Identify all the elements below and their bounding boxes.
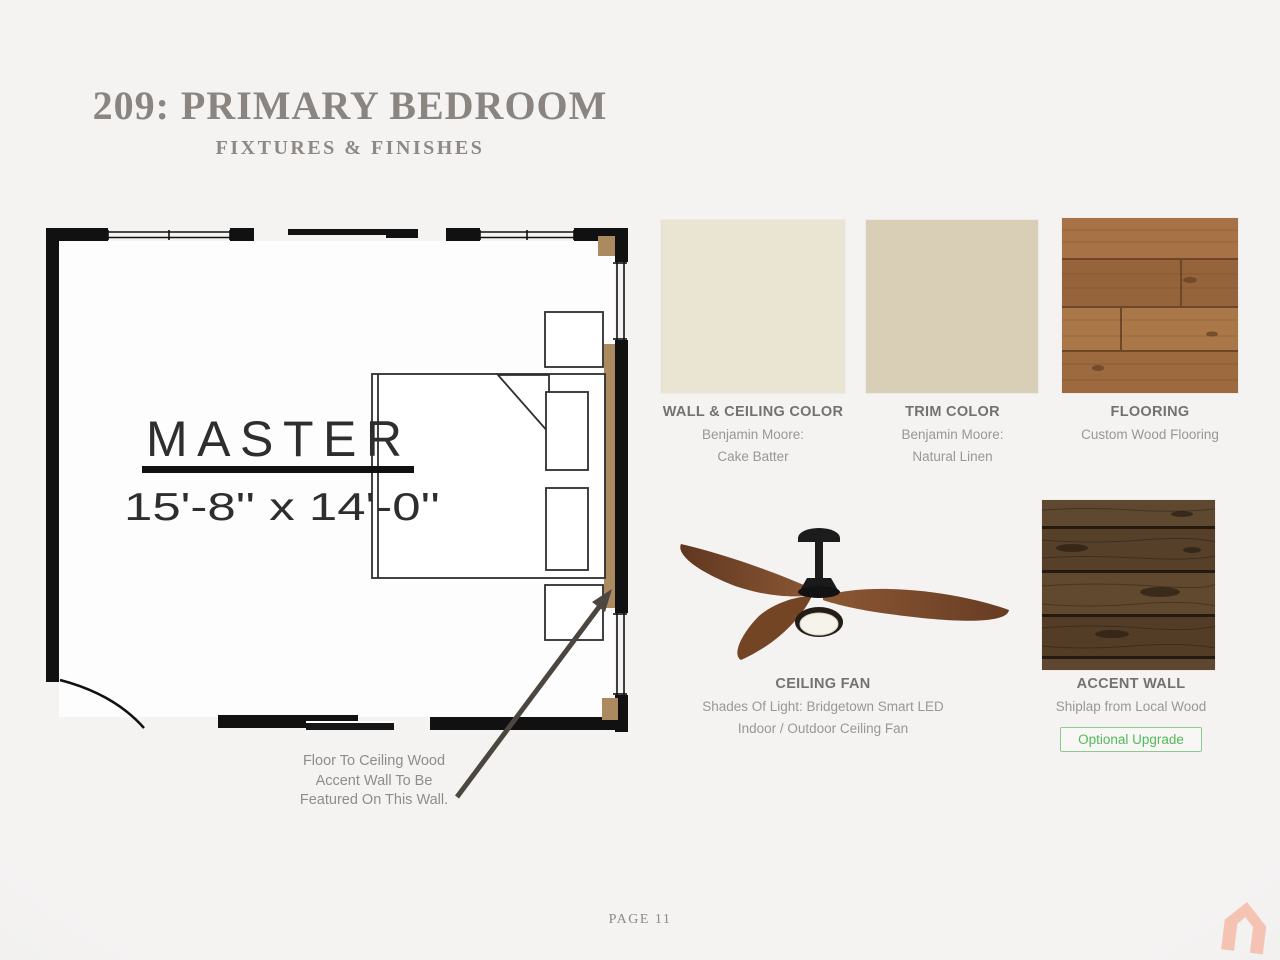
room-dimensions: 15'-8'' x 14'-0'' <box>124 486 440 529</box>
label-trim-color: TRIM COLOR Benjamin Moore: Natural Linen <box>855 404 1050 468</box>
label-ceiling-fan: CEILING FAN Shades Of Light: Bridgetown … <box>658 676 988 740</box>
label-flooring: FLOORING Custom Wood Flooring <box>1052 404 1248 446</box>
label-accent-wall: ACCENT WALL Shiplap from Local Wood Opti… <box>1028 676 1234 752</box>
finish-detail: Shiplap from Local Wood <box>1028 696 1234 718</box>
page-number: PAGE 11 <box>0 912 1280 928</box>
room-label-underline <box>142 466 414 473</box>
slide-page: 209: PRIMARY BEDROOM FIXTURES & FINISHES <box>0 0 1280 960</box>
finish-detail: Benjamin Moore: Cake Batter <box>651 424 855 468</box>
brand-logo-icon <box>1214 894 1276 956</box>
finish-title: ACCENT WALL <box>1028 676 1234 692</box>
finish-detail: Benjamin Moore: Natural Linen <box>855 424 1050 468</box>
annotation-line: Floor To Ceiling Wood <box>268 752 480 772</box>
finish-title: WALL & CEILING COLOR <box>651 404 855 420</box>
bed <box>372 374 605 578</box>
annotation-line: Accent Wall To Be <box>268 772 480 792</box>
swatch-flooring-photo <box>1062 218 1238 393</box>
swatch-accent-wall-photo <box>1042 500 1215 670</box>
optional-upgrade-badge: Optional Upgrade <box>1060 727 1202 752</box>
finish-title: CEILING FAN <box>658 676 988 692</box>
slider-gap <box>306 721 396 723</box>
ceiling-fan-photo <box>665 522 1015 667</box>
finish-title: FLOORING <box>1052 404 1248 420</box>
finish-detail: Shades Of Light: Bridgetown Smart LED In… <box>658 696 988 740</box>
swatch-trim-color <box>866 220 1038 393</box>
annotation-text: Floor To Ceiling Wood Accent Wall To Be … <box>268 752 480 811</box>
swatch-wall-ceiling-color <box>661 220 845 393</box>
header: 209: PRIMARY BEDROOM FIXTURES & FINISHES <box>70 82 630 160</box>
annotation-line: Featured On This Wall. <box>268 791 480 811</box>
label-wall-ceiling-color: WALL & CEILING COLOR Benjamin Moore: Cak… <box>651 404 855 468</box>
finish-title: TRIM COLOR <box>855 404 1050 420</box>
finish-detail: Custom Wood Flooring <box>1052 424 1248 446</box>
sliding-door <box>306 723 394 730</box>
page-subtitle: FIXTURES & FINISHES <box>70 137 630 160</box>
floor-plan: MASTER 15'-8'' x 14'-0'' <box>46 228 628 828</box>
page-title: 209: PRIMARY BEDROOM <box>70 82 630 129</box>
